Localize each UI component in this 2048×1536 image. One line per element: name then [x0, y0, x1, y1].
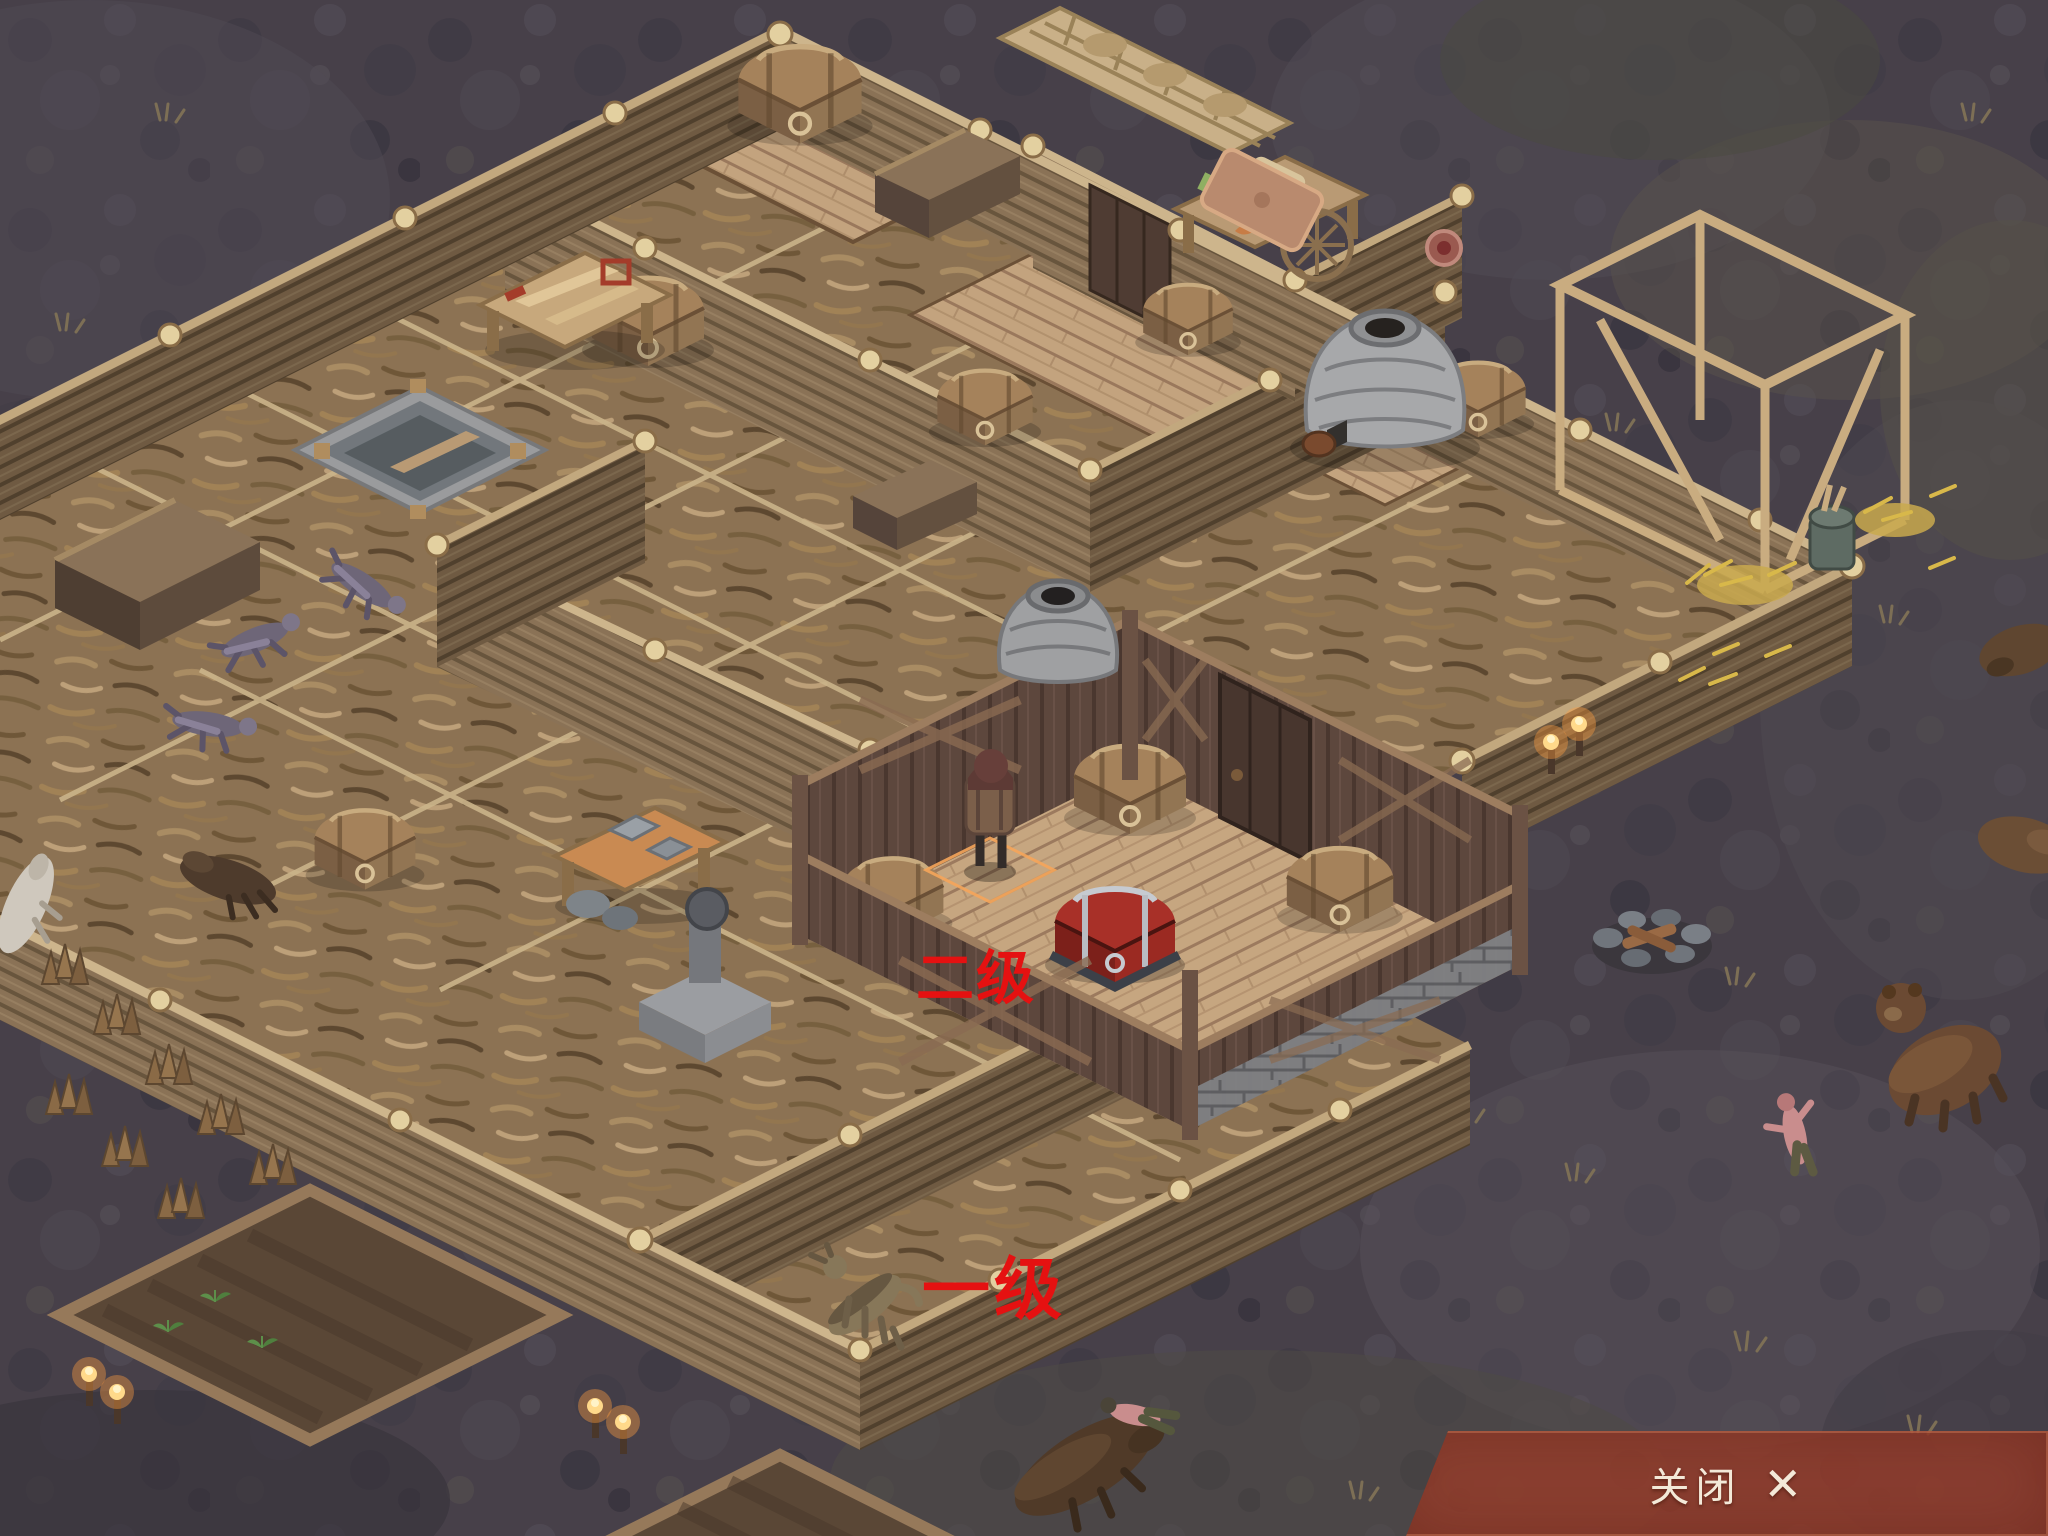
wooden-chest[interactable] [929, 371, 1041, 448]
close-button-label[interactable]: 关闭 [1649, 1455, 1741, 1513]
wooden-chest[interactable] [306, 810, 425, 891]
game-viewport: 二级 一级 关闭 ✕ [0, 0, 2048, 1536]
close-bar[interactable]: 关闭 ✕ [1402, 1431, 2048, 1536]
wooden-chest[interactable] [1135, 285, 1241, 357]
close-icon[interactable]: ✕ [1763, 1457, 1802, 1511]
clay-pot[interactable] [1427, 231, 1461, 265]
wooden-chest[interactable] [1277, 848, 1402, 934]
wooden-chest[interactable] [727, 47, 872, 146]
